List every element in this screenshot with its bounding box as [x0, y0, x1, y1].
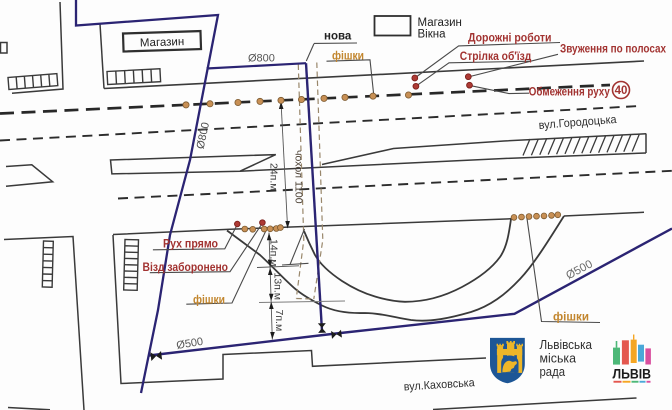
svg-text:Ø800: Ø800 [248, 53, 275, 65]
svg-text:Магазин: Магазин [418, 17, 462, 29]
svg-text:13п.м: 13п.м [272, 273, 284, 301]
svg-text:Дорожні роботи: Дорожні роботи [468, 31, 552, 45]
svg-text:рада: рада [540, 364, 566, 379]
svg-text:Обмеження руху: Обмеження руху [529, 87, 611, 99]
svg-text:чохол 1100: чохол 1100 [293, 150, 305, 204]
svg-text:ЛЬВІВ: ЛЬВІВ [613, 366, 652, 382]
svg-text:24п.м: 24п.м [267, 163, 279, 191]
svg-text:Візд заборонено: Візд заборонено [143, 262, 229, 274]
svg-text:40: 40 [615, 85, 628, 97]
svg-text:14п.м: 14п.м [268, 239, 280, 267]
svg-text:Вікна: Вікна [418, 29, 447, 41]
svg-text:7п.м: 7п.м [273, 310, 285, 332]
svg-text:Магазин: Магазин [140, 36, 185, 49]
svg-text:фішки: фішки [553, 310, 589, 324]
svg-text:Рух прямо: Рух прямо [163, 237, 218, 251]
svg-text:Звуження по полосах: Звуження по полосах [560, 44, 667, 56]
svg-text:фішки: фішки [332, 49, 364, 63]
svg-text:нова: нова [324, 31, 352, 43]
svg-text:фішки: фішки [193, 293, 225, 307]
svg-text:Стрілка об'їзд: Стрілка об'їзд [460, 49, 532, 63]
